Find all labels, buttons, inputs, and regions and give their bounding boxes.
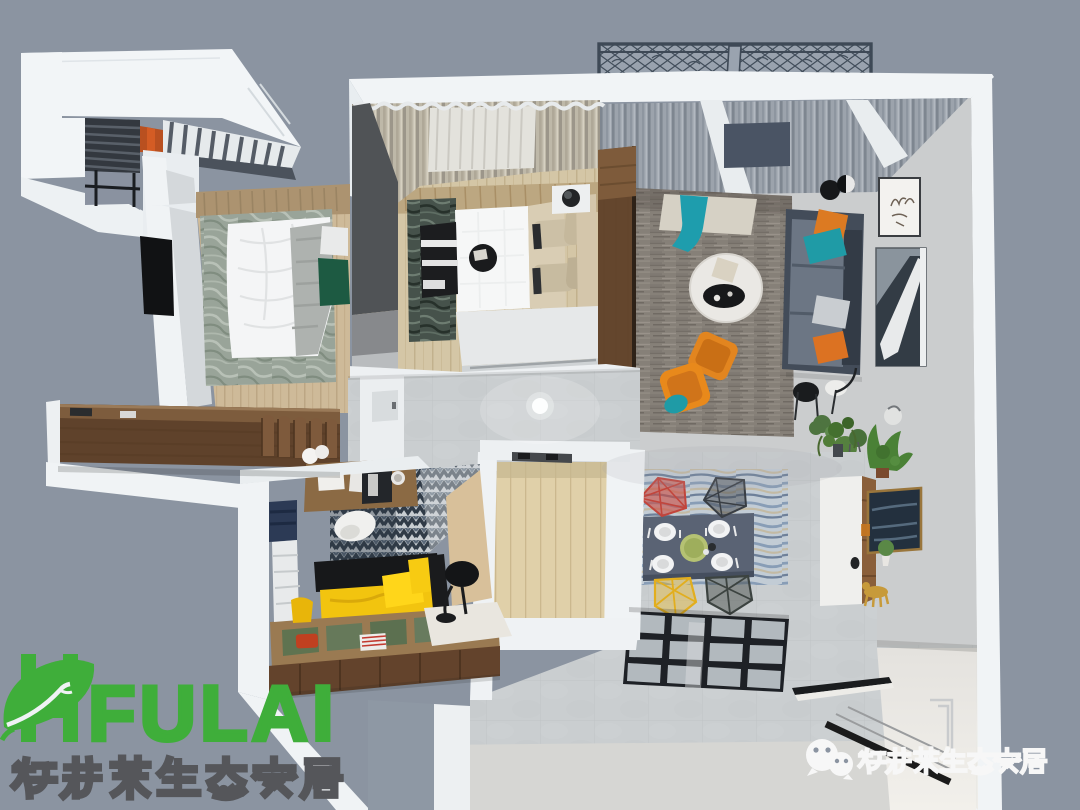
svg-text:FULAI: FULAI xyxy=(88,669,338,757)
